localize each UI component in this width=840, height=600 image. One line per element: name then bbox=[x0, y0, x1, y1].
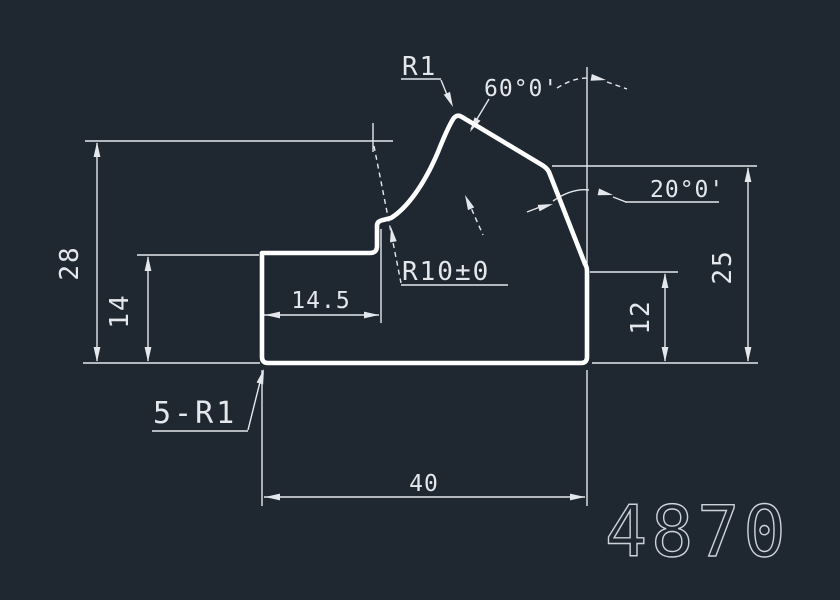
dimension-14-5-step-width: 14.5 bbox=[264, 229, 381, 323]
dimension-arrow bbox=[265, 312, 280, 319]
dim-12-label: 12 bbox=[626, 299, 656, 334]
dimension-14-step-height: 14 bbox=[105, 255, 259, 362]
dimension-arrow bbox=[662, 273, 669, 288]
callout-r1-peak: R1 bbox=[401, 52, 456, 108]
callout-angle-60: 60°0' bbox=[462, 74, 627, 235]
dim-14-5-label: 14.5 bbox=[291, 288, 350, 314]
dimension-arrow bbox=[745, 167, 752, 182]
angle-arrow bbox=[598, 189, 614, 199]
dimension-arrow bbox=[94, 142, 101, 157]
dimension-arrow bbox=[145, 347, 152, 362]
dimension-arrow bbox=[94, 347, 101, 362]
dimension-12-right-lower-height: 12 bbox=[590, 272, 678, 362]
part-profile-outline bbox=[262, 116, 587, 363]
dim-28-label: 28 bbox=[55, 245, 85, 280]
leader-arrow bbox=[444, 92, 456, 108]
cad-drawing-canvas[interactable]: 28 14 14.5 40 25 12 bbox=[0, 0, 840, 600]
dimension-arrow bbox=[570, 494, 585, 501]
angle-60-label: 60°0' bbox=[484, 76, 558, 102]
angle-arc-tail bbox=[607, 82, 627, 89]
dim-40-label: 40 bbox=[409, 471, 439, 497]
dimension-arrow bbox=[745, 347, 752, 362]
5-r1-label: 5-R1 bbox=[153, 396, 237, 431]
leader-arrow bbox=[388, 226, 397, 242]
dimension-arrow bbox=[364, 312, 379, 319]
angle-arc-tail bbox=[527, 207, 540, 212]
leader-line bbox=[613, 197, 626, 202]
drawing-number: 4870 bbox=[605, 491, 790, 573]
r1-label: R1 bbox=[402, 52, 437, 82]
profile-drawing-4870: 28 14 14.5 40 25 12 bbox=[0, 0, 840, 600]
dim-25-label: 25 bbox=[708, 249, 738, 284]
dimension-arrow bbox=[662, 347, 669, 362]
r10-label: R10±0 bbox=[402, 257, 490, 287]
dim-14-label: 14 bbox=[105, 293, 135, 328]
angle-arrow bbox=[538, 201, 554, 212]
angle-20-label: 20°0' bbox=[650, 177, 724, 203]
angle-arrow bbox=[591, 74, 607, 83]
dimension-arrow bbox=[145, 256, 152, 271]
callout-5-r1-corners: 5-R1 bbox=[152, 368, 267, 431]
dimension-arrow bbox=[265, 494, 280, 501]
dimension-40-overall-width: 40 bbox=[262, 370, 587, 506]
